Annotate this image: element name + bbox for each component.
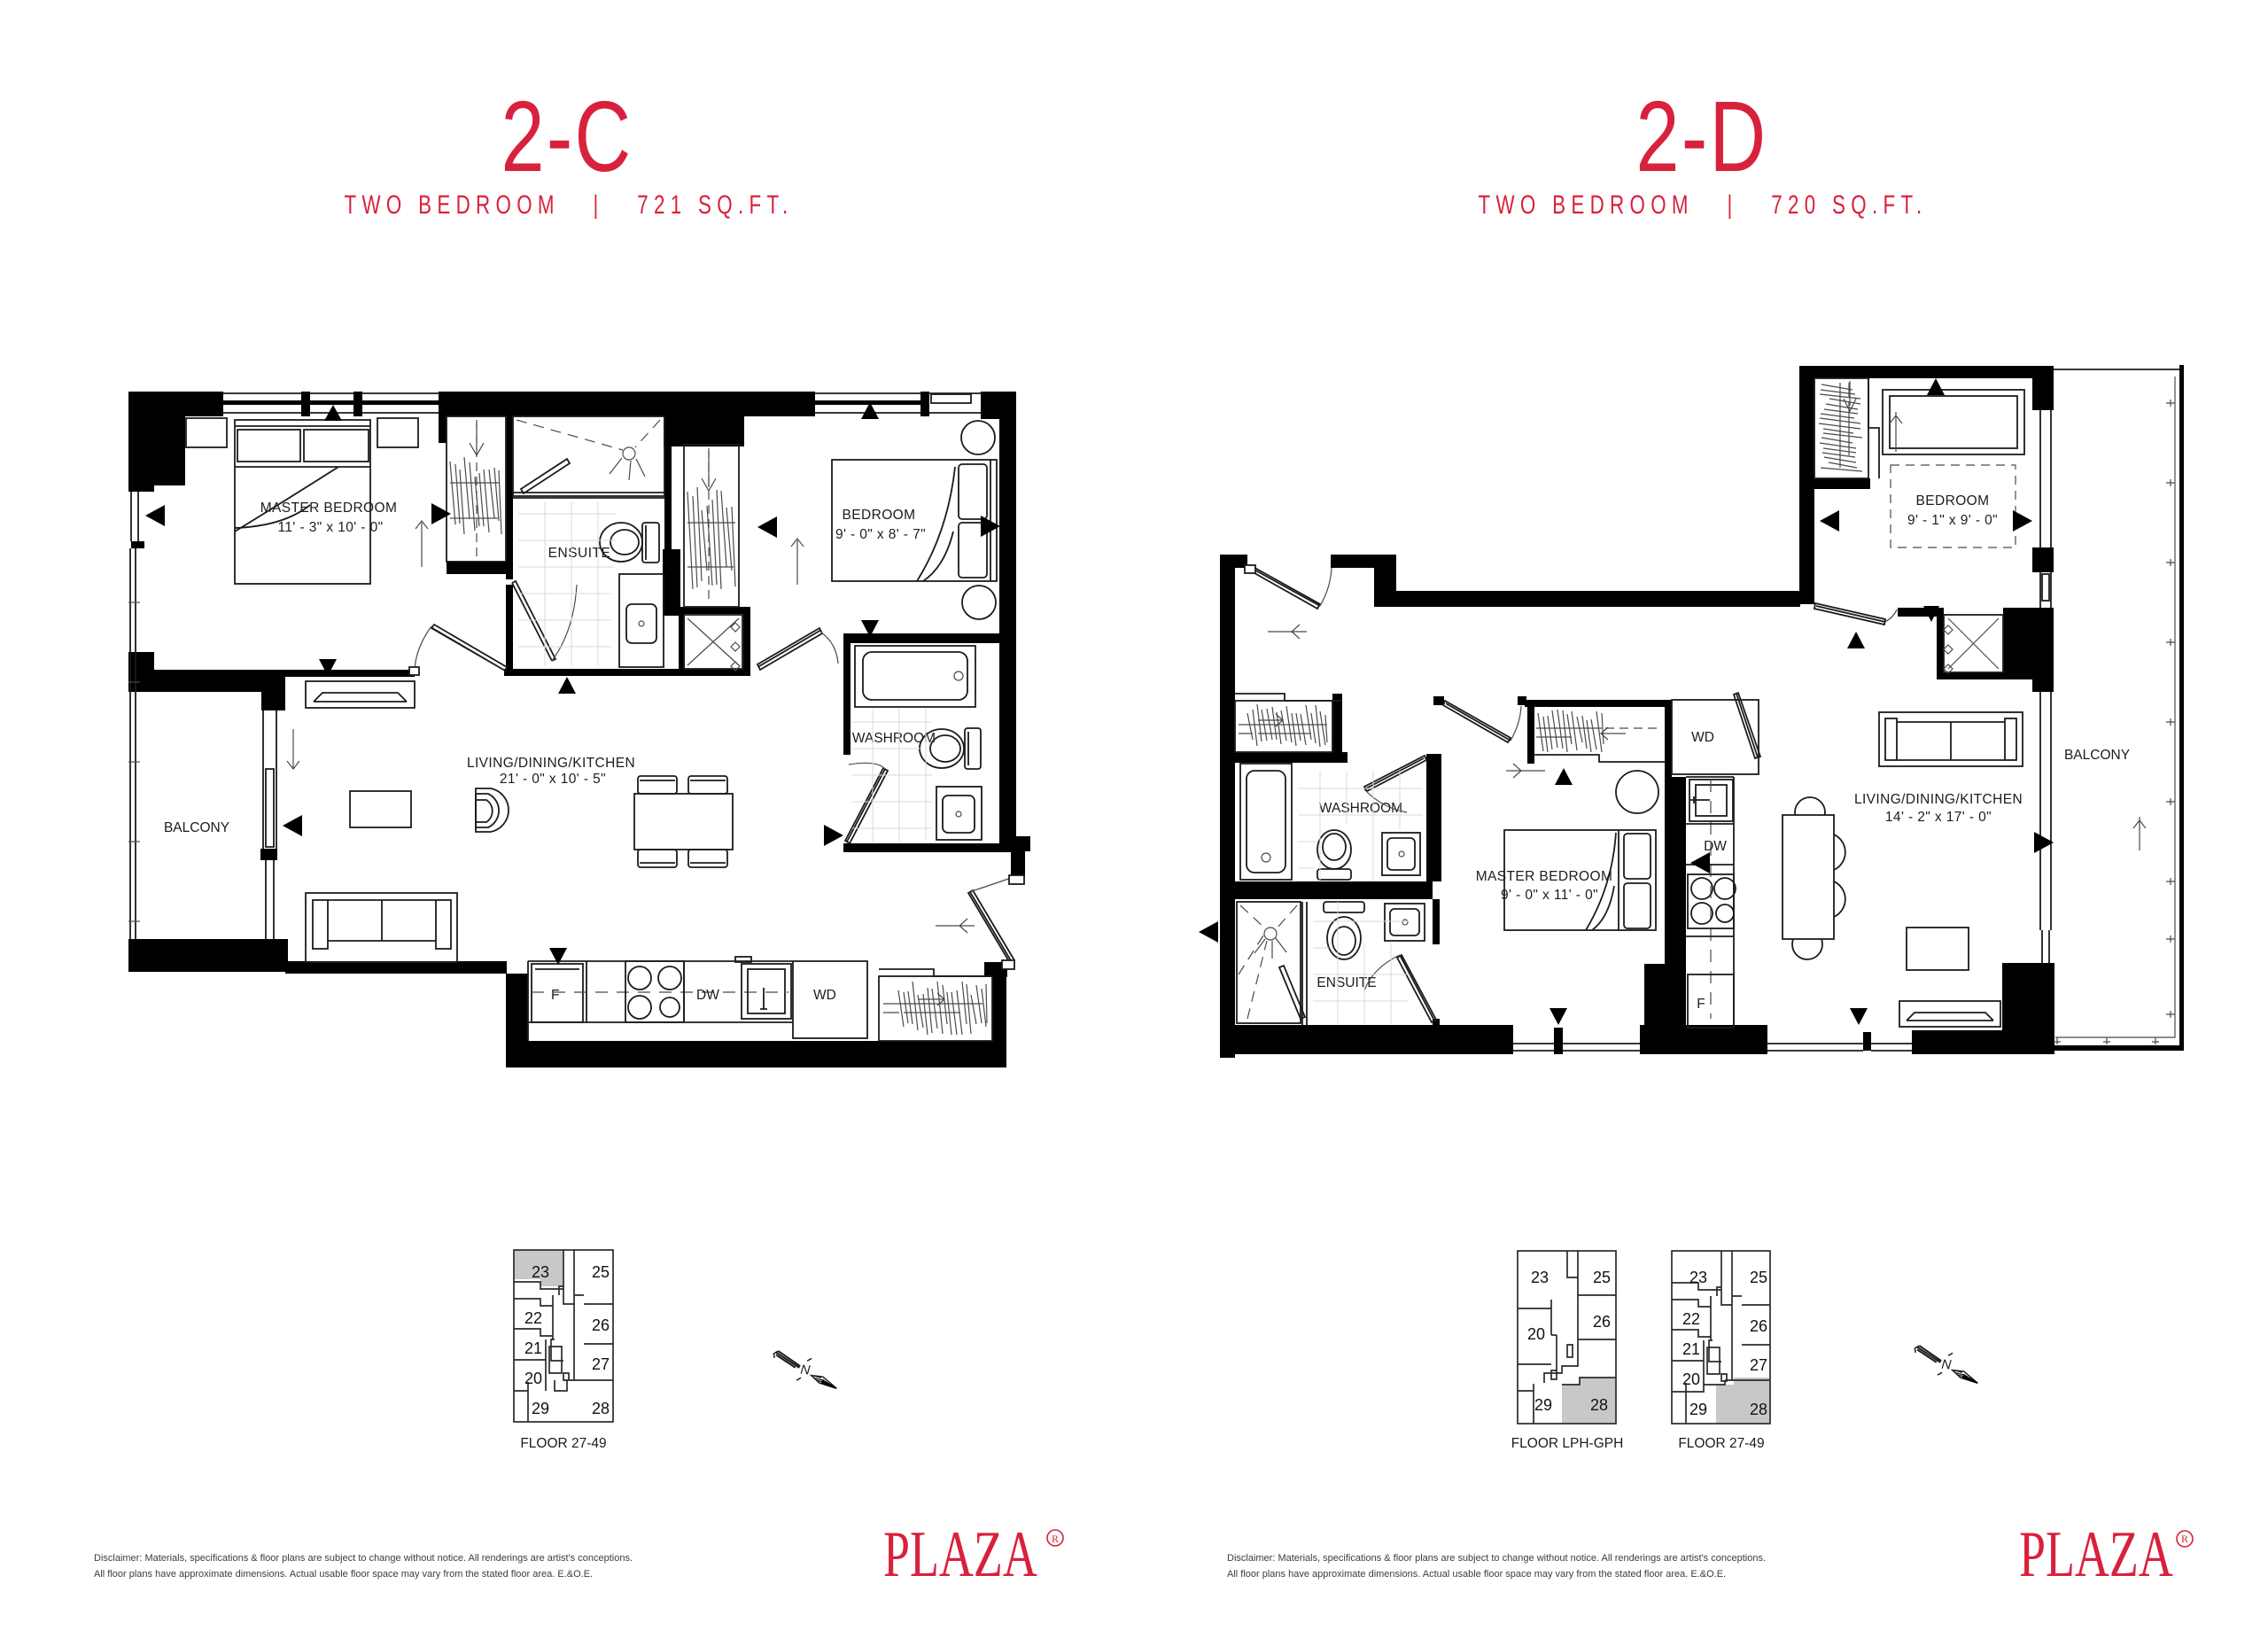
svg-text:28: 28 [1590, 1396, 1608, 1414]
svg-text:DW: DW [1704, 839, 1727, 854]
svg-text:N: N [1941, 1357, 1952, 1373]
svg-text:22: 22 [524, 1309, 542, 1327]
svg-text:27: 27 [592, 1355, 610, 1373]
svg-text:FLOOR 27-49: FLOOR 27-49 [520, 1436, 606, 1451]
svg-text:25: 25 [592, 1263, 610, 1281]
svg-text:9' - 0" x 8' - 7": 9' - 0" x 8' - 7" [835, 527, 926, 542]
svg-text:TWO BEDROOM | 721 SQ.FT.: TWO BEDROOM | 721 SQ.FT. [344, 190, 793, 220]
svg-text:TWO BEDROOM | 720 SQ.FT.: TWO BEDROOM | 720 SQ.FT. [1478, 190, 1927, 220]
svg-text:2-C: 2-C [501, 82, 633, 193]
svg-text:25: 25 [1593, 1269, 1611, 1286]
svg-text:27: 27 [1750, 1356, 1767, 1374]
svg-text:28: 28 [1750, 1401, 1767, 1418]
svg-text:25: 25 [1750, 1269, 1767, 1286]
svg-text:23: 23 [1531, 1269, 1549, 1286]
svg-text:BEDROOM: BEDROOM [1916, 493, 1990, 508]
svg-text:11' - 3" x 10' - 0": 11' - 3" x 10' - 0" [277, 520, 383, 535]
svg-text:MASTER BEDROOM: MASTER BEDROOM [260, 501, 398, 516]
svg-text:N: N [800, 1362, 811, 1378]
svg-text:LIVING/DINING/KITCHEN: LIVING/DINING/KITCHEN [467, 756, 635, 771]
svg-text:21' - 0" x 10' - 5": 21' - 0" x 10' - 5" [500, 772, 606, 787]
svg-text:20: 20 [524, 1370, 542, 1387]
svg-text:26: 26 [1750, 1317, 1767, 1335]
svg-text:FLOOR 27-49: FLOOR 27-49 [1678, 1436, 1764, 1451]
svg-text:2-D: 2-D [1635, 82, 1767, 193]
svg-text:BALCONY: BALCONY [164, 820, 229, 835]
svg-text:20: 20 [1527, 1325, 1545, 1343]
svg-text:20: 20 [1682, 1370, 1700, 1388]
svg-text:F: F [1697, 997, 1705, 1012]
svg-text:23: 23 [532, 1263, 549, 1281]
svg-text:WASHROOM: WASHROOM [852, 731, 936, 746]
svg-text:FLOOR LPH-GPH: FLOOR LPH-GPH [1511, 1436, 1624, 1451]
svg-text:21: 21 [1682, 1340, 1700, 1358]
svg-text:R: R [1052, 1533, 1059, 1545]
svg-text:WD: WD [813, 988, 836, 1003]
svg-text:R: R [2181, 1533, 2188, 1545]
svg-text:BALCONY: BALCONY [2064, 748, 2130, 763]
svg-text:LIVING/DINING/KITCHEN: LIVING/DINING/KITCHEN [1854, 792, 2023, 807]
svg-text:14' - 2" x 17' - 0": 14' - 2" x 17' - 0" [1885, 810, 1992, 825]
svg-text:29: 29 [1689, 1401, 1707, 1418]
svg-text:Disclaimer: Materials, specifi: Disclaimer: Materials, specifications & … [1227, 1553, 1766, 1564]
svg-text:All floor plans have approxima: All floor plans have approximate dimensi… [94, 1569, 593, 1580]
svg-text:ENSUITE: ENSUITE [548, 546, 611, 561]
svg-text:29: 29 [532, 1400, 549, 1417]
svg-text:DW: DW [696, 988, 719, 1003]
svg-text:23: 23 [1689, 1269, 1707, 1286]
svg-text:9' - 1" x 9' - 0": 9' - 1" x 9' - 0" [1907, 513, 1998, 528]
svg-text:All floor plans have approxima: All floor plans have approximate dimensi… [1227, 1569, 1726, 1580]
svg-text:9' - 0" x 11' - 0": 9' - 0" x 11' - 0" [1501, 888, 1598, 903]
svg-text:28: 28 [592, 1400, 610, 1417]
svg-text:21: 21 [524, 1339, 542, 1357]
svg-text:Disclaimer: Materials, specifi: Disclaimer: Materials, specifications & … [94, 1553, 633, 1564]
svg-text:26: 26 [592, 1316, 610, 1334]
svg-text:BEDROOM: BEDROOM [843, 508, 916, 523]
svg-text:26: 26 [1593, 1313, 1611, 1331]
svg-text:PLAZA: PLAZA [883, 1518, 1037, 1591]
svg-text:F: F [551, 988, 559, 1003]
svg-text:WASHROOM: WASHROOM [1319, 801, 1402, 816]
svg-text:PLAZA: PLAZA [2019, 1518, 2173, 1591]
svg-text:29: 29 [1534, 1396, 1552, 1414]
svg-text:MASTER BEDROOM: MASTER BEDROOM [1476, 869, 1613, 884]
svg-text:WD: WD [1691, 730, 1714, 745]
svg-text:22: 22 [1682, 1310, 1700, 1328]
